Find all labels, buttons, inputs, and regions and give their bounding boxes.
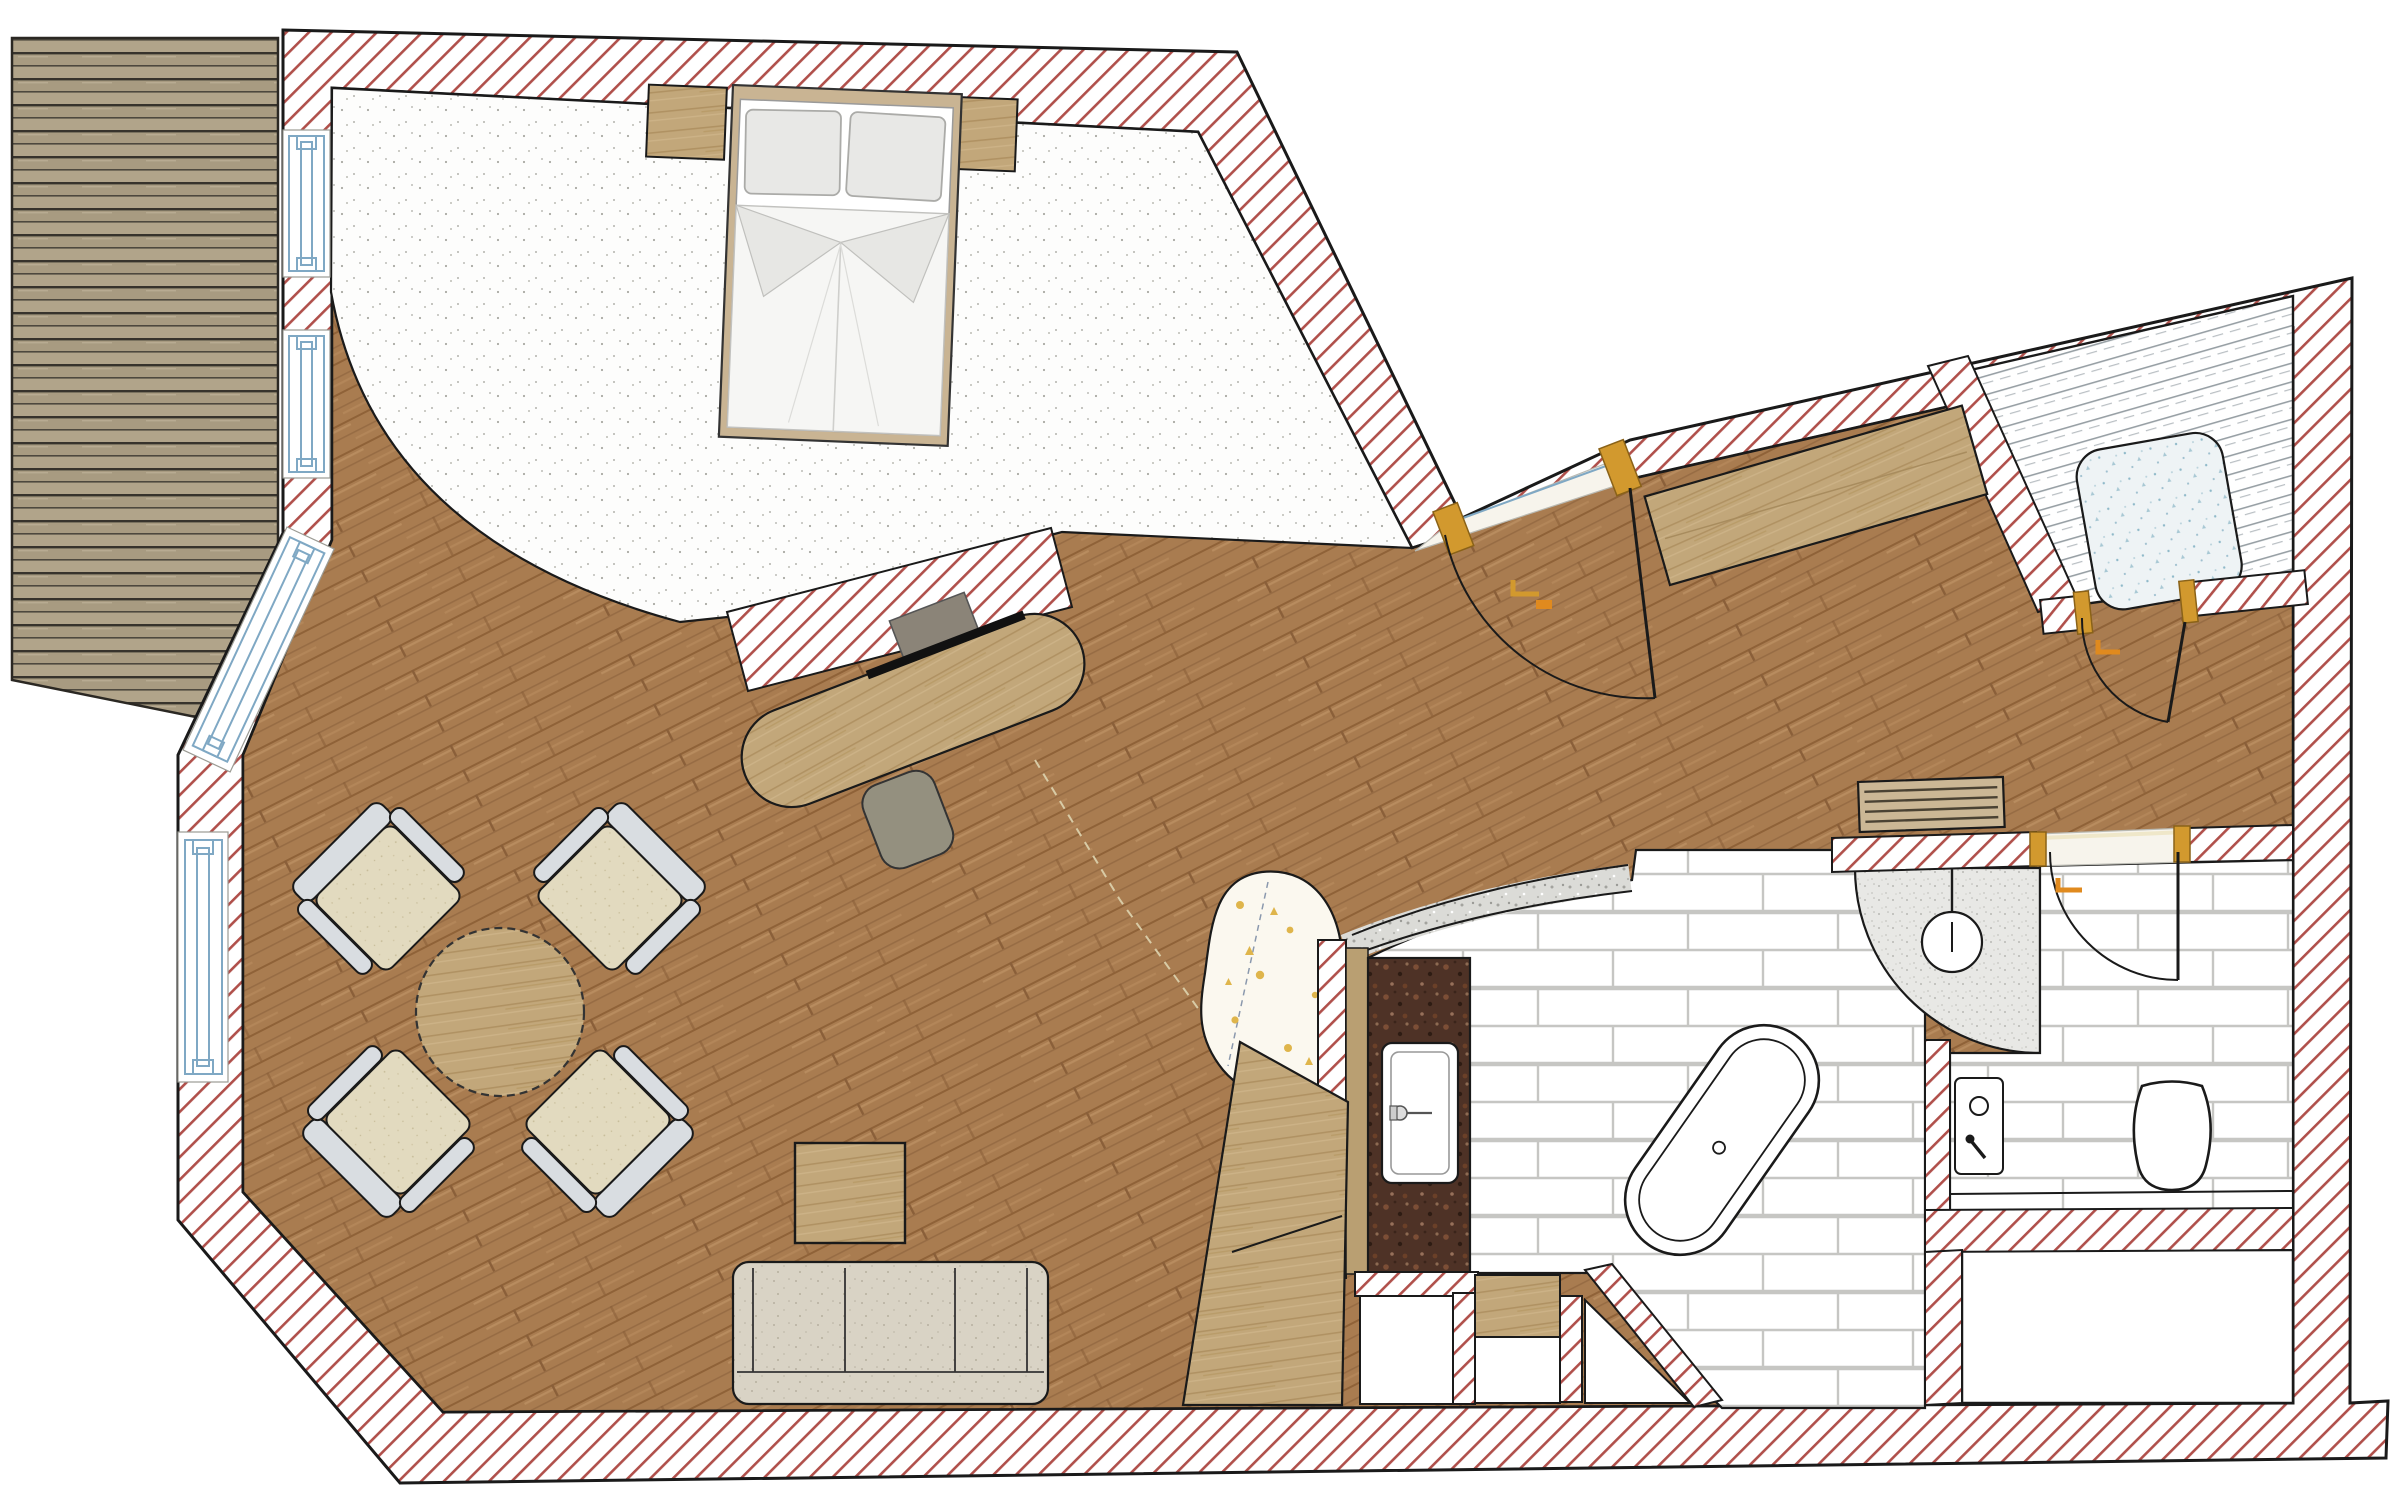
toilet (2134, 1082, 2211, 1191)
vanity-side-panel (1346, 948, 1368, 1274)
bedroom-window-upper (283, 130, 330, 277)
storage-room (1962, 1250, 2293, 1403)
flush-button-icon (1970, 1097, 1988, 1115)
wc-door-jamb-left (2030, 832, 2046, 866)
cistern-panel (1955, 1078, 2003, 1174)
pillow-left (745, 110, 842, 196)
round-dining-table (416, 928, 584, 1096)
living-room-window (178, 832, 228, 1082)
nightstand-left (646, 85, 727, 160)
pillow-right (846, 112, 946, 202)
floor-plan-drawing (0, 0, 2408, 1490)
wc-door-jamb-right (2174, 826, 2190, 862)
entrance-doorstop (1536, 600, 1552, 609)
coffee-table (795, 1143, 905, 1243)
floor-plan-canvas (0, 0, 2408, 1490)
radiator (1858, 777, 2005, 832)
bedroom-window-lower (283, 330, 330, 478)
sofa (733, 1262, 1048, 1404)
